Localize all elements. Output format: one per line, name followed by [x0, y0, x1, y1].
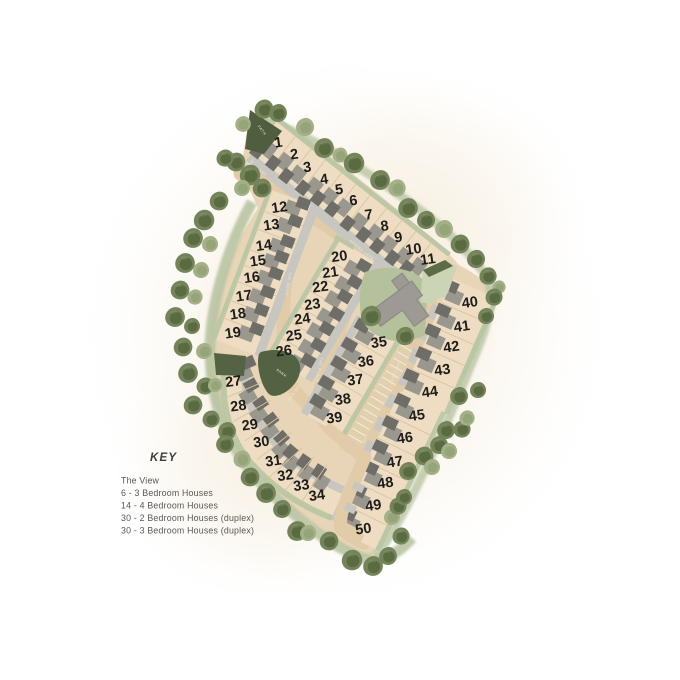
svg-text:34: 34 — [308, 487, 326, 505]
svg-text:15: 15 — [249, 252, 267, 270]
svg-text:The View: The View — [121, 476, 160, 486]
svg-text:43: 43 — [433, 361, 451, 379]
svg-text:24: 24 — [293, 310, 311, 328]
svg-text:45: 45 — [408, 407, 426, 425]
svg-text:12: 12 — [270, 199, 288, 217]
svg-text:36: 36 — [357, 353, 375, 371]
svg-text:44: 44 — [421, 383, 439, 401]
svg-text:22: 22 — [311, 278, 329, 296]
svg-text:28: 28 — [229, 397, 247, 415]
svg-text:20: 20 — [330, 248, 348, 266]
svg-text:16: 16 — [243, 269, 261, 287]
svg-text:50: 50 — [354, 520, 372, 538]
svg-text:37: 37 — [346, 371, 364, 389]
svg-text:30 - 2 Bedroom Houses (duplex): 30 - 2 Bedroom Houses (duplex) — [121, 513, 254, 523]
svg-text:48: 48 — [376, 474, 394, 492]
svg-text:46: 46 — [396, 429, 414, 447]
svg-text:41: 41 — [453, 318, 471, 336]
svg-text:6 - 3 Bedroom Houses: 6 - 3 Bedroom Houses — [121, 488, 213, 498]
svg-text:42: 42 — [442, 338, 460, 356]
svg-text:38: 38 — [334, 391, 352, 409]
svg-text:35: 35 — [370, 334, 388, 352]
svg-text:11: 11 — [419, 251, 436, 269]
svg-text:30 - 3 Bedroom Houses (duplex): 30 - 3 Bedroom Houses (duplex) — [121, 526, 254, 536]
svg-text:KEY: KEY — [150, 452, 177, 464]
svg-text:17: 17 — [235, 287, 253, 305]
svg-text:19: 19 — [224, 324, 242, 342]
svg-text:27: 27 — [224, 373, 242, 391]
svg-text:18: 18 — [229, 305, 247, 323]
svg-text:30: 30 — [252, 433, 270, 451]
svg-text:39: 39 — [325, 409, 343, 427]
svg-text:13: 13 — [262, 216, 280, 234]
svg-text:26: 26 — [275, 342, 293, 360]
svg-text:29: 29 — [241, 416, 259, 434]
svg-text:14 - 4 Bedroom Houses: 14 - 4 Bedroom Houses — [121, 501, 219, 511]
svg-text:47: 47 — [386, 453, 404, 471]
svg-text:40: 40 — [461, 294, 479, 312]
svg-text:49: 49 — [364, 497, 382, 515]
